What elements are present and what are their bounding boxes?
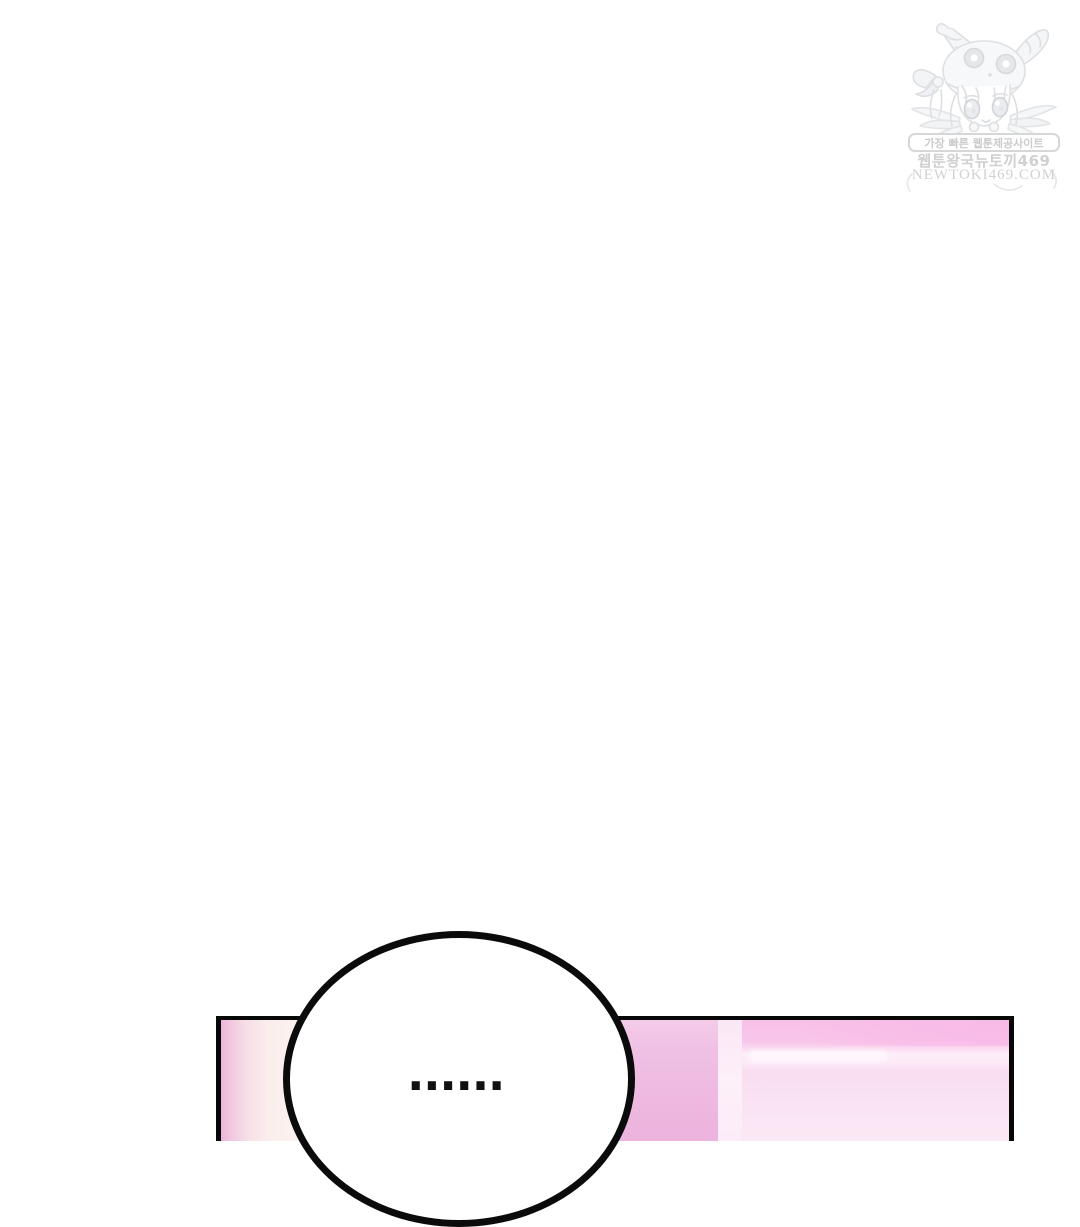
watermark-domain: NEWTOKI469.COM: [901, 167, 1067, 184]
panel-divider-stripe-art: [718, 1020, 742, 1141]
speech-bubble-ellipsis-text: ......: [407, 1051, 504, 1097]
panel-right-wall-art: [742, 1020, 1009, 1141]
webtoon-page: { "page": { "background": "#ffffff", "wi…: [0, 0, 1080, 1125]
watermark-tagline-text: 가장 빠른 웹툰제공사이트: [925, 135, 1044, 151]
panel-right-highlight-stripe: [748, 1050, 888, 1062]
site-watermark: 가장 빠른 웹툰제공사이트 웹툰왕국뉴토끼469 NEWTOKI469.COM: [898, 14, 1070, 206]
panel-right-top-band: [802, 1020, 1009, 1046]
